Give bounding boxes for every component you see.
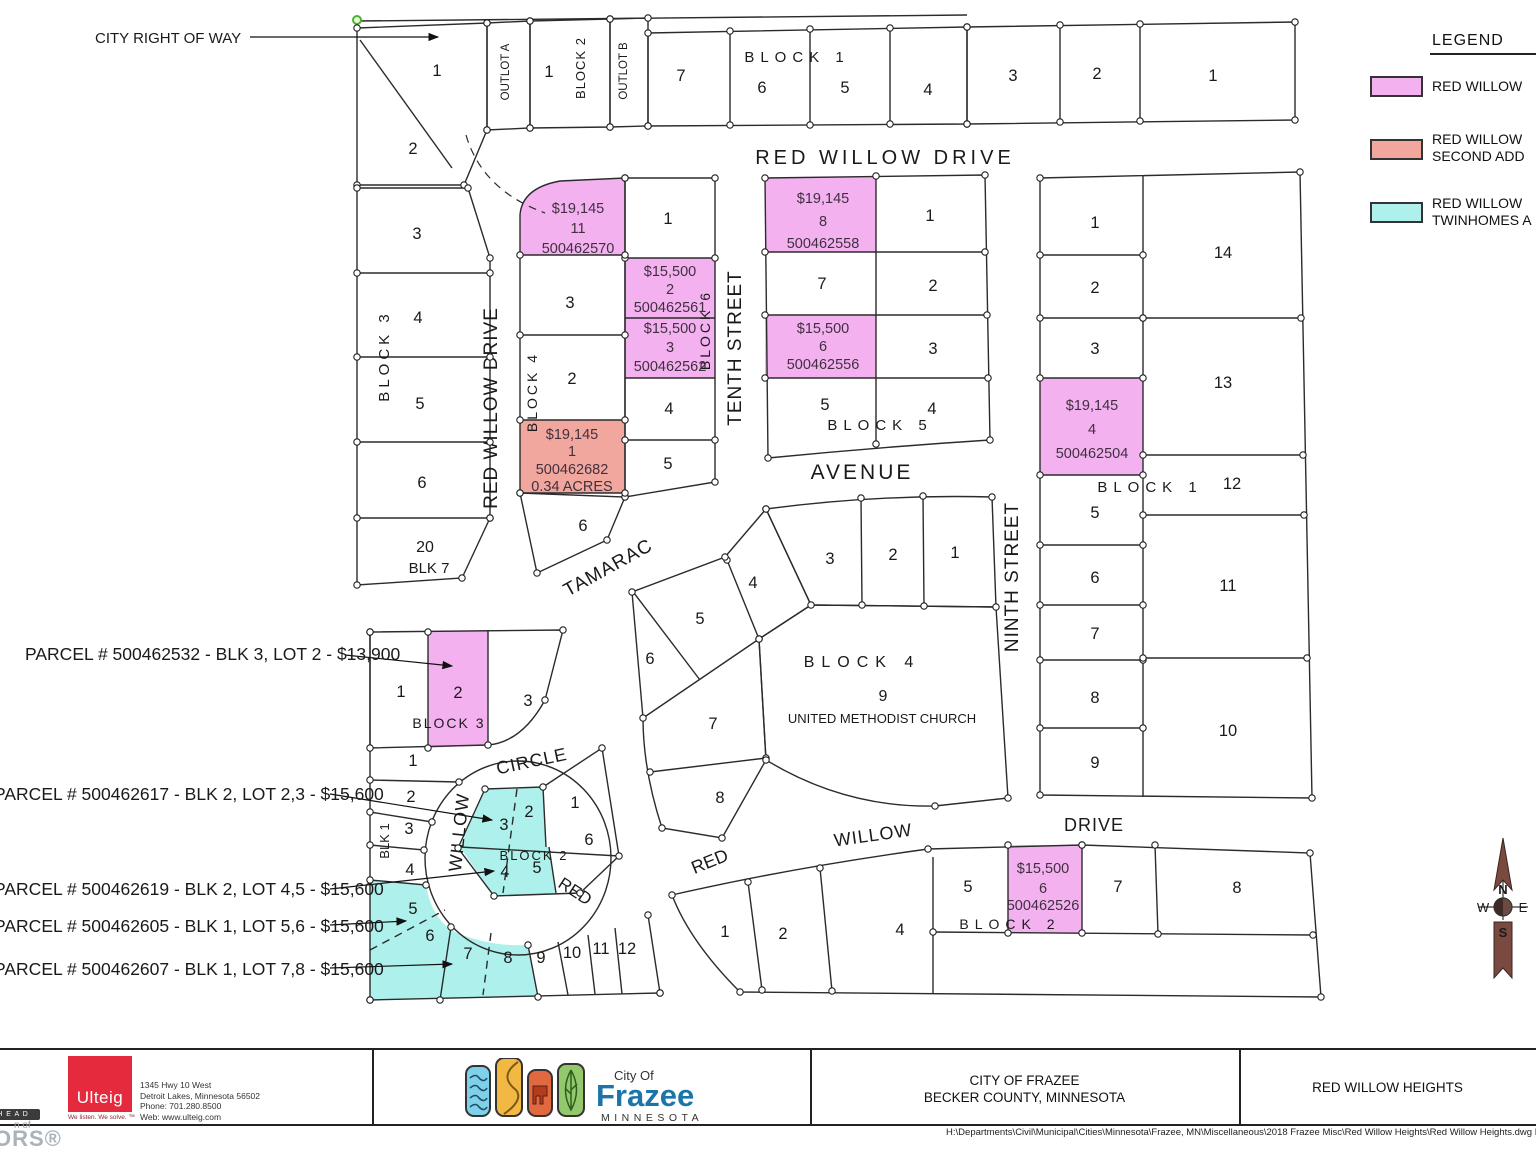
lot-corner-node [367,777,373,783]
ulteig-address-line: Web: www.ulteig.com [140,1112,260,1123]
lot-number: 1 [408,752,417,770]
lot-corner-node [1292,19,1298,25]
lot-number: 6 [645,650,654,668]
street-red-circle: RED [555,874,595,909]
lot-corner-node [982,249,988,255]
county-line1: CITY OF FRAZEE [810,1072,1239,1089]
lot-corner-node [448,924,454,930]
lot-number: 2 [928,277,937,295]
compass-rose: N W E S [1477,838,1528,978]
price-500462558: 500462558 [787,236,860,252]
compass-s: S [1499,925,1508,940]
lot-corner-node [1037,375,1043,381]
lot-corner-node [984,312,990,318]
lot-number: 10 [1219,722,1237,740]
lot-corner-node [712,437,718,443]
lot-corner-node [517,417,523,423]
lot-corner-node [645,30,651,36]
lot-number: 12 [618,940,636,958]
lot-number: 5 [532,859,541,877]
lot-corner-node [484,127,490,133]
block1-east-label: BLOCK 1 [1097,479,1202,496]
lot-corner-node [540,784,546,790]
lot-corner-node [657,990,663,996]
lot-corner-node [517,490,523,496]
lot-number: 13 [1214,374,1232,392]
lot-corner-node [985,375,991,381]
lot-corner-node [367,997,373,1003]
lot-corner-node [629,589,635,595]
lot-corner-node [763,506,769,512]
blk7-label: BLK 7 [409,560,450,577]
block-topleft [357,23,487,185]
lot-corner-node [712,255,718,261]
lot-corner-node [1057,119,1063,125]
legend-label: RED WILLOW [1432,195,1522,211]
lot-corner-node [534,570,540,576]
price-500462570: $19,145 [552,201,604,217]
ulteig-logo-text: Ulteig [77,1088,123,1112]
lot-corner-node [719,835,725,841]
lot-number: 1 [432,62,441,80]
street-avenue: AVENUE [811,461,914,484]
lot-corner-node [1301,512,1307,518]
block4-center-label: BLOCK 4 [804,654,921,671]
lot-corner-node [987,437,993,443]
trail-icon [496,1058,522,1116]
block2-top [530,19,610,128]
lot-corner-node [712,479,718,485]
lot-corner-node [873,441,879,447]
lot-corner-node [1140,512,1146,518]
lot-corner-node [1037,542,1043,548]
ulteig-address-line: Detroit Lakes, Minnesota 56502 [140,1091,260,1102]
lot-number: 4 [500,863,509,881]
lot-corner-node [577,890,583,896]
price-500462504: 4 [1088,422,1096,438]
frazee-logo-icons [464,1058,594,1118]
callout-parcel-500462617: PARCEL # 500462617 - BLK 2, LOT 2,3 - $1… [0,784,384,804]
street-ninth: NINTH STREET [1002,502,1023,652]
legend-label: SECOND ADD [1432,148,1525,164]
legend-swatch-second-addition [1370,139,1423,160]
price-500462562: $15,500 [644,321,696,337]
plat-sheet: RED WILLOW DRIVERED WILLOW DRIVETENTH ST… [0,0,1536,1152]
lot-corner-node [762,375,768,381]
lot-number: 3 [1008,67,1017,85]
footer-divider [372,1050,374,1124]
price-500462561: $15,500 [644,264,696,280]
street-red-bottom: RED [688,845,731,878]
lot-number: 4 [927,400,936,418]
callout-parcel-500462619: PARCEL # 500462619 - BLK 2, LOT 4,5 - $1… [0,879,384,899]
lot-corner-node [425,629,431,635]
legend-underline [1430,53,1536,55]
price-500462682: 500462682 [536,462,609,478]
watermark-fragment-bar: H E A D [0,1109,40,1120]
lot-corner-node [982,172,988,178]
lot-corner-node [542,697,548,703]
point-of-beginning-node [353,16,361,24]
lot-corner-node [1037,725,1043,731]
lot-number: 6 [425,927,434,945]
lot-corner-node [1297,169,1303,175]
lot-corner-node [873,173,879,179]
lot-corner-node [607,16,613,22]
lot-number: 4 [895,921,904,939]
lot-corner-node [607,124,613,130]
lot-number: 5 [820,396,829,414]
lot-corner-node [1307,850,1313,856]
lot-number: 1 [925,207,934,225]
map-labels: RED WILLOW DRIVERED WILLOW DRIVETENTH ST… [0,30,1242,979]
price-500462682: $19,145 [546,427,598,443]
lot-corner-node [829,988,835,994]
lot-number: 4 [923,81,932,99]
lot-corner-node [920,493,926,499]
lot-number: 2 [567,370,576,388]
lot-number: 7 [1113,878,1122,896]
ulteig-tagline: We listen. We solve. ™ [68,1114,135,1121]
lot-number: 2 [406,788,415,806]
lot-number: 2 [453,684,462,702]
lot-corner-node [1037,175,1043,181]
lot-number: 14 [1214,244,1232,262]
block1-top-west [648,27,967,126]
lot-corner-node [808,602,814,608]
lot-number: 5 [963,878,972,896]
price-500462682: 1 [568,444,576,460]
price-500462556: $15,500 [797,321,849,337]
lot-corner-node [727,122,733,128]
lot-corner-node [1037,252,1043,258]
lot-corner-node [930,929,936,935]
lot-corner-node [1298,315,1304,321]
lot-number: 6 [1090,569,1099,587]
lot-corner-node [517,332,523,338]
lot-number: 1 [720,923,729,941]
lot-number: 4 [405,861,414,879]
price-500462526: 6 [1039,881,1047,897]
lot-corner-node [659,825,665,831]
lot-corner-node [1304,655,1310,661]
street-drive-bottom: DRIVE [1064,815,1124,835]
price-500462561: 500462561 [634,300,707,316]
price-500462562: 3 [666,340,674,356]
lot-corner-node [367,629,373,635]
lot-number: 6 [584,831,593,849]
lot-corner-node [1079,842,1085,848]
lot-number: 7 [463,945,472,963]
lot-corner-node [525,942,531,948]
lot-number: 1 [950,544,959,562]
lot-corner-node [964,121,970,127]
lot-number: 10 [563,944,581,962]
lot-corner-node [354,439,360,445]
lot-corner-node [1140,542,1146,548]
church-name-label: UNITED METHODIST CHURCH [788,711,976,726]
lot-corner-node [647,769,653,775]
lot-corner-node [527,18,533,24]
lot-corner-node [1309,795,1315,801]
lot-corner-node [993,604,999,610]
lot-number: 1 [1090,214,1099,232]
lot-number: 8 [1090,689,1099,707]
lot-number: 2 [1090,279,1099,297]
ulteig-logo: Ulteig [68,1056,132,1112]
ulteig-address: 1345 Hwy 10 West Detroit Lakes, Minnesot… [140,1080,260,1122]
callout-city-right-of-way: CITY RIGHT OF WAY [95,30,241,47]
block2-bottom-label: BLOCK 2 [959,916,1060,932]
lot-number: 5 [695,610,704,628]
compass-w: W [1477,900,1490,915]
lot-number: 8 [715,789,724,807]
lot-number: 2 [1092,65,1101,83]
lot-corner-node [1140,252,1146,258]
lot-corner-node [762,312,768,318]
lot-corner-node [354,270,360,276]
price-500462556: 500462556 [787,357,860,373]
lot-number: 9 [1090,754,1099,772]
lot-corner-node [367,842,373,848]
lot-corner-node [487,255,493,261]
block3-south-label: BLOCK 3 [412,715,485,731]
legend-swatch-twinhomes [1370,202,1423,223]
lot-number: 4 [748,574,757,592]
lot-corner-node [616,853,622,859]
lot-corner-node [737,989,743,995]
church-lot-number: 9 [879,688,888,705]
callout-parcel-500462532: PARCEL # 500462532 - BLK 3, LOT 2 - $13,… [25,644,400,664]
lot-corner-node [354,185,360,191]
plat-map: RED WILLOW DRIVERED WILLOW DRIVETENTH ST… [0,0,1536,1152]
lot-number: 5 [415,395,424,413]
block5-label: BLOCK 5 [827,417,932,434]
lot-corner-node [932,803,938,809]
lot-corner-node [367,809,373,815]
lot-corner-node [354,354,360,360]
lot-corner-node [485,742,491,748]
lot-number: 1 [396,683,405,701]
lot-corner-node [465,185,471,191]
block1-top-label: BLOCK 1 [744,49,849,66]
lot-corner-node [1140,472,1146,478]
street-tamarac: TAMARAC [560,535,656,601]
lot-corner-node [423,882,429,888]
lot-number: 7 [1090,625,1099,643]
price-500462504: $19,145 [1066,398,1118,414]
lot-corner-node [354,582,360,588]
lot-corner-node [487,270,493,276]
lot-corner-node [1140,602,1146,608]
price-500462556: 6 [819,339,827,355]
lot-number: 8 [503,949,512,967]
lot-corner-node [640,715,646,721]
lot-corner-node [535,994,541,1000]
watermark-fragment-big: ORS® [0,1126,62,1152]
lot-corner-node [604,537,610,543]
callout-parcel-500462605: PARCEL # 500462605 - BLK 1, LOT 5,6 - $1… [0,916,384,936]
lot-corner-node [1140,315,1146,321]
outlot-a-label: OUTLOT A [500,43,512,100]
lot-corner-node [1037,472,1043,478]
lot-corner-node [712,175,718,181]
lot-number: 2 [524,803,533,821]
lot-corner-node [763,757,769,763]
lot-corner-node [455,845,461,851]
church-parcel [759,605,1008,806]
lot-corner-node [622,175,628,181]
twinhomes-highlight-blk1 [370,880,538,1000]
lot-number: 12 [1223,475,1241,493]
legend-title: LEGEND [1432,32,1504,50]
blk1-south-label: BLK 1 [377,823,392,858]
lot-number: 3 [565,294,574,312]
lot-number: 7 [676,67,685,85]
lot-corner-node [1037,315,1043,321]
lot-number: 1 [544,63,553,81]
lot-corner-node [964,24,970,30]
block4-west-label: BLOCK 4 [524,352,540,432]
lot-number: 6 [578,517,587,535]
lot-corner-node [1005,842,1011,848]
lot-corner-node [989,494,995,500]
lot-corner-node [421,847,427,853]
lot-corner-node [560,627,566,633]
lot-number: 11 [1219,577,1236,595]
price-500462526: 500462526 [1007,898,1080,914]
lot-number: 2 [408,140,417,158]
lot-corner-node [491,893,497,899]
price-500462558: $19,145 [797,191,849,207]
lot-number: 9 [536,949,545,967]
lot-corner-node [622,417,628,423]
lot-number: 4 [413,309,422,327]
lot-corner-node [622,490,628,496]
lot-corner-node [1300,452,1306,458]
lot-number: 1 [663,210,672,228]
ulteig-address-line: Phone: 701.280.8500 [140,1101,260,1112]
county-panel: CITY OF FRAZEE BECKER COUNTY, MINNESOTA [810,1072,1239,1106]
lot-corner-node [517,252,523,258]
lot-corner-node [487,439,493,445]
lot-number: 4 [664,400,673,418]
lot-number: 11 [592,940,609,958]
lot-corner-node [622,332,628,338]
lot-corner-node [429,819,435,825]
lot-number: 3 [412,225,421,243]
lot-number: 1 [1208,67,1217,85]
lot-number: 7 [708,715,717,733]
price-500462558: 8 [819,214,827,230]
lot-number: 6 [757,79,766,97]
lot-corner-node [859,602,865,608]
lot-corner-node [1318,994,1324,1000]
lot-corner-node [1005,930,1011,936]
lot-corner-node [807,26,813,32]
lot-corner-node [887,121,893,127]
lot-corner-node [1310,932,1316,938]
lot-number: 2 [778,925,787,943]
callout-parcel-500462607: PARCEL # 500462607 - BLK 1, LOT 7,8 - $1… [0,959,384,979]
lot-corner-node [1140,655,1146,661]
street-tenth: TENTH STREET [725,270,746,426]
plat-top-boundary [357,15,967,21]
lot-corner-node [527,125,533,131]
lot-number: 5 [1090,504,1099,522]
lot20-label: 20 [416,539,434,556]
lot-corner-node [887,25,893,31]
lot-corner-node [1292,117,1298,123]
sheet-title: RED WILLOW HEIGHTS [1239,1080,1536,1095]
lot-corner-node [425,745,431,751]
lot-corner-node [437,997,443,1003]
lot-corner-node [1037,602,1043,608]
lot-corner-node [459,575,465,581]
dwg-file-path: H:\Departments\Civil\Municipal\Cities\Mi… [946,1127,1536,1138]
lot-number: 5 [663,455,672,473]
lot-number: 3 [404,820,413,838]
title-block: Ulteig We listen. We solve. ™ 1345 Hwy 1… [0,1048,1536,1126]
lot-number: 7 [817,275,826,293]
street-circle: CIRCLE [494,744,569,779]
price-500462570: 11 [570,221,585,237]
street-willow-west: WILLOW [445,792,473,873]
lot-number: 3 [825,550,834,568]
lot-number: 6 [417,474,426,492]
lot-corner-node [745,879,751,885]
lot-corner-node [817,865,823,871]
lot-corner-node [1140,375,1146,381]
lot-corner-node [645,912,651,918]
lot-corner-node [1152,842,1158,848]
lot-corner-node [759,987,765,993]
lot-corner-node [456,779,462,785]
legend-label: RED WILLOW [1432,131,1522,147]
price-500462504: 500462504 [1056,446,1129,462]
lot-corner-node [1137,118,1143,124]
compass-n: N [1498,882,1507,897]
price-500462526: $15,500 [1017,861,1069,877]
block2-top-label: BLOCK 2 [573,37,588,99]
lot-corner-node [1005,795,1011,801]
lot-corner-node [1037,792,1043,798]
frazee-logo-name: Frazee [596,1078,694,1114]
lot-number: 3 [928,340,937,358]
legend-swatch-red-willow [1370,76,1423,97]
lot-number: 8 [1232,879,1241,897]
lot-corner-node [645,123,651,129]
lot-number: 3 [1090,340,1099,358]
lot-corner-node [765,455,771,461]
lot-corner-node [354,25,360,31]
lot-corner-node [669,892,675,898]
street-red-willow-drive-west: RED WILLOW DRIVE [481,307,502,509]
lot-number: 5 [408,900,417,918]
lot-corner-node [487,515,493,521]
price-500462570: 500462570 [542,241,615,257]
frazee-state: MINNESOTA [601,1112,703,1124]
lot-corner-node [484,20,490,26]
block4-row [766,497,996,608]
lot-corner-node [1079,930,1085,936]
lot-corner-node [1155,931,1161,937]
lot-corner-node [1140,725,1146,731]
lot-corner-node [1140,452,1146,458]
legend-label: RED WILLOW [1432,78,1522,94]
lot-corner-node [354,515,360,521]
lot-corner-node [645,15,651,21]
